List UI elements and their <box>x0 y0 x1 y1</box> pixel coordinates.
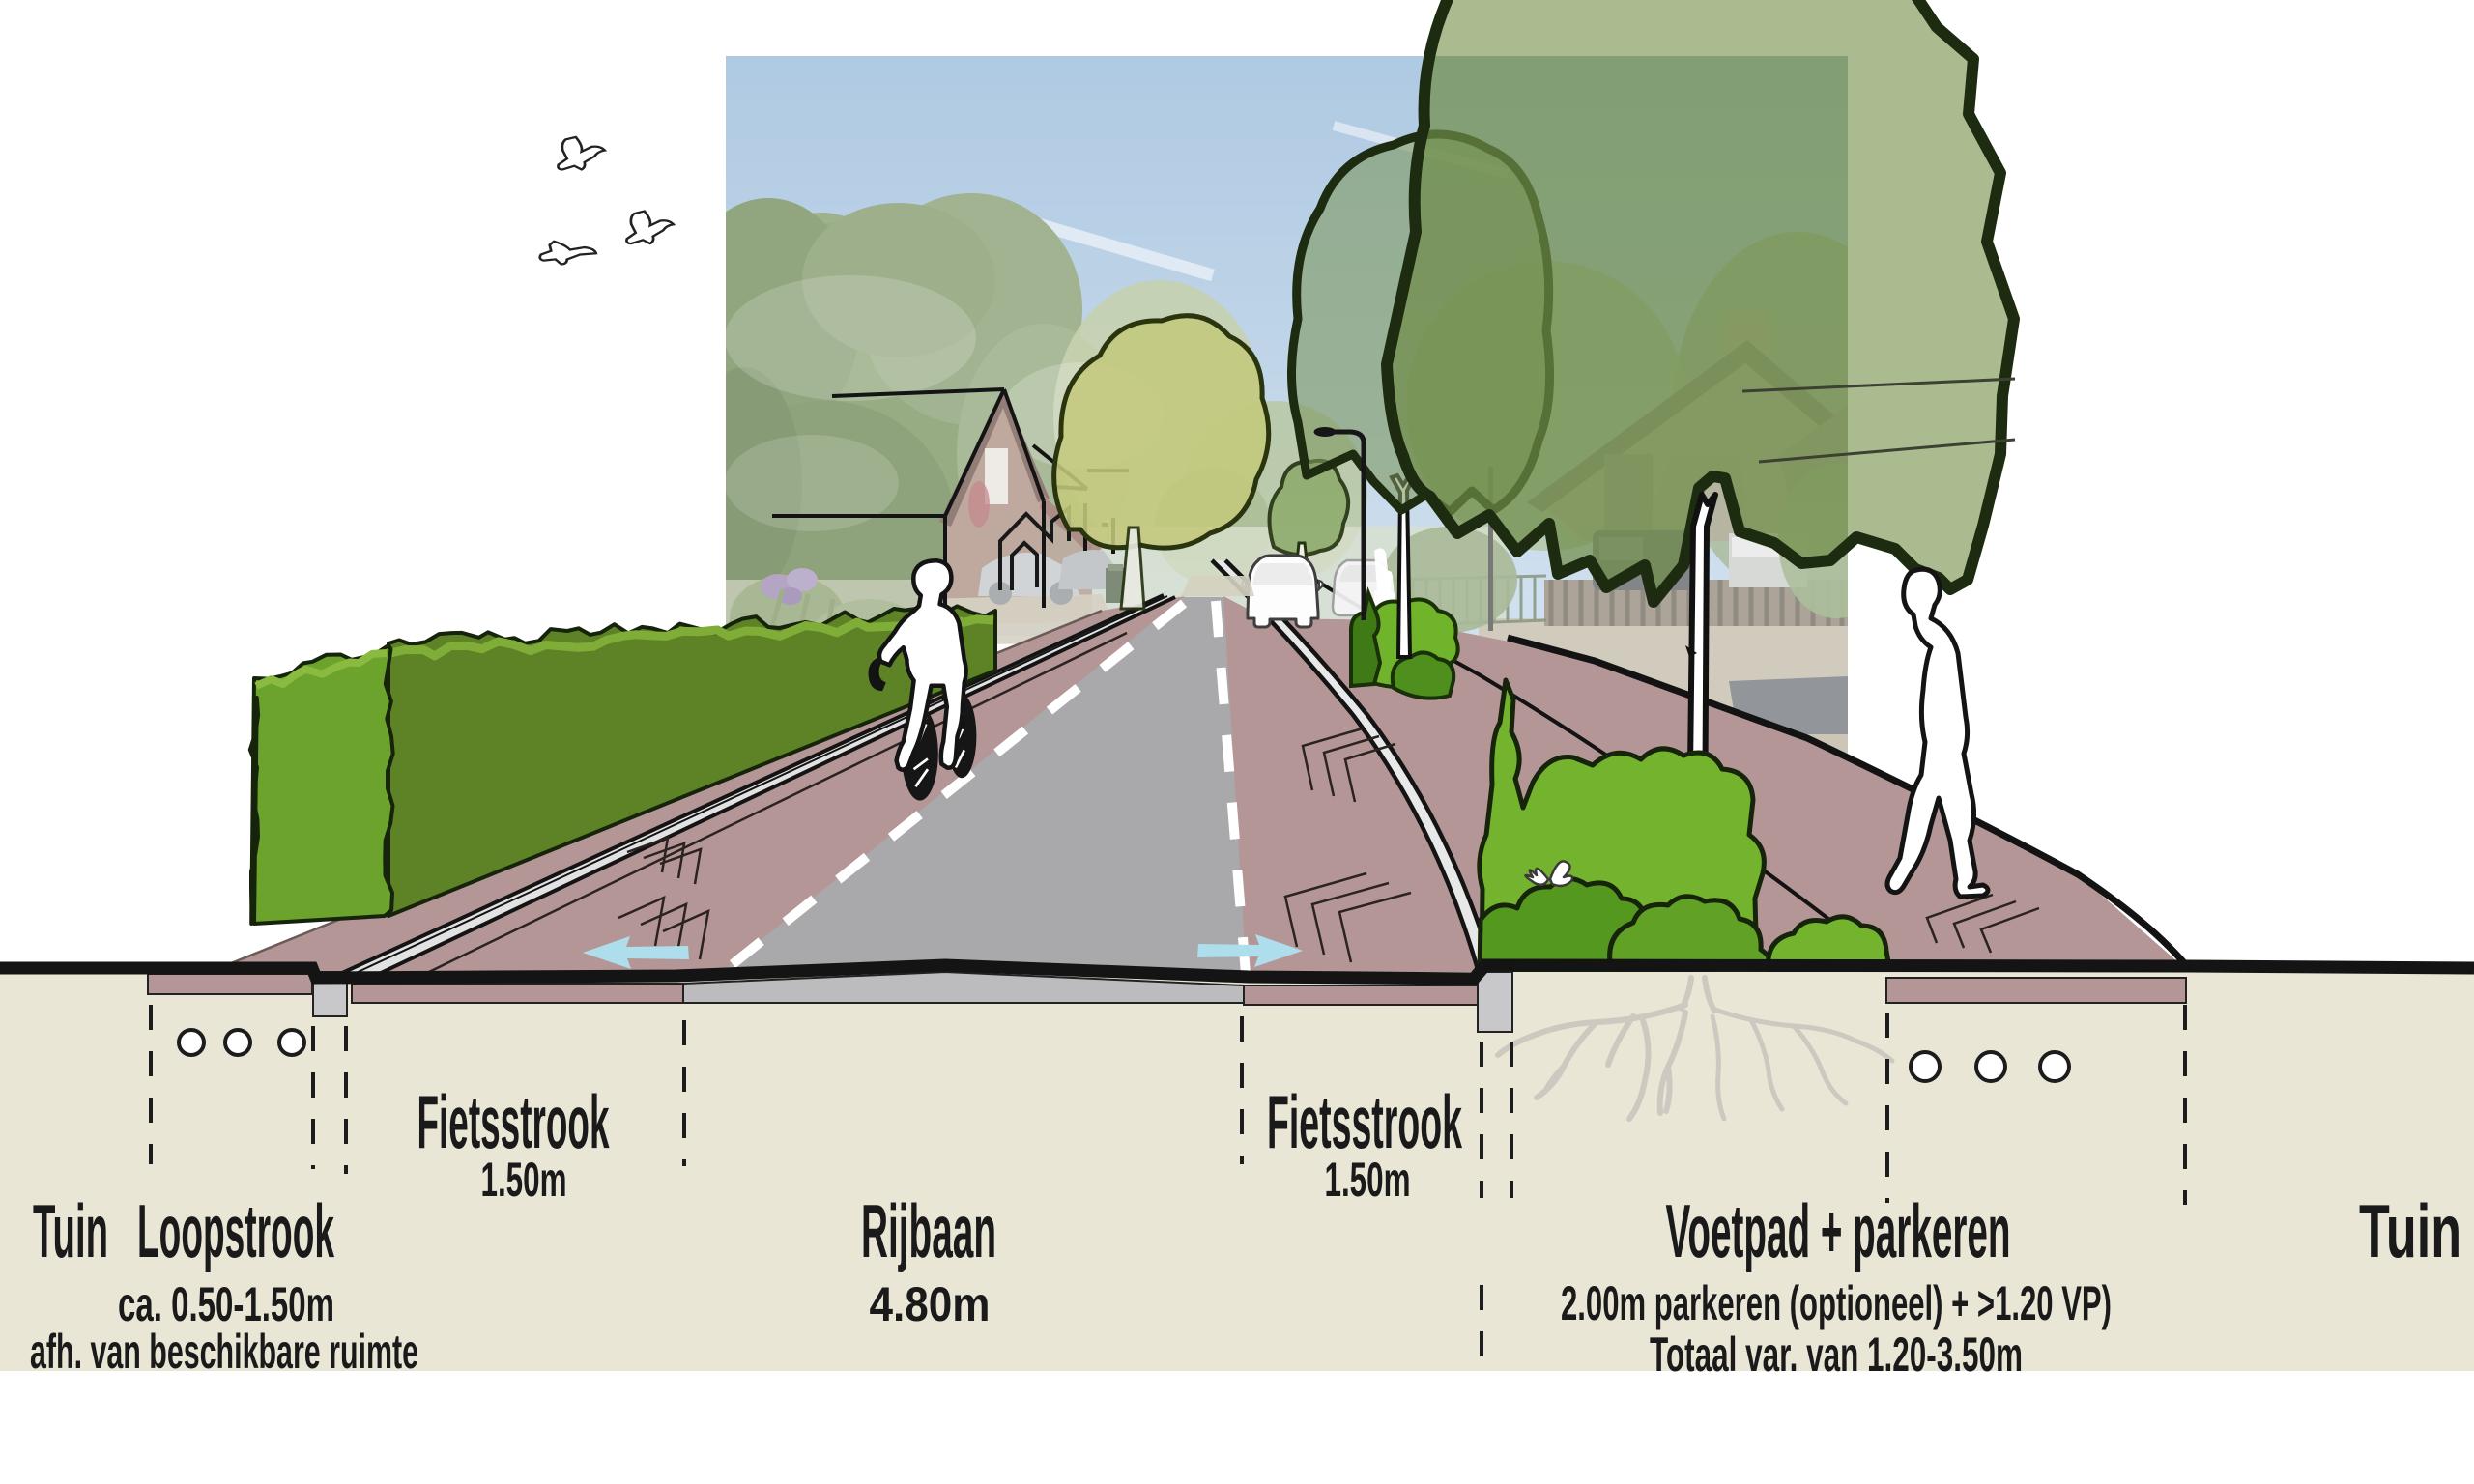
svg-text:Fietsstrook: Fietsstrook <box>1267 1079 1462 1164</box>
svg-text:Fietsstrook: Fietsstrook <box>417 1079 610 1164</box>
svg-text:Rijbaan: Rijbaan <box>861 1188 996 1273</box>
svg-text:ca. 0.50-1.50m: ca. 0.50-1.50m <box>118 1277 334 1331</box>
svg-text:Totaal var. van 1.20-3.50m: Totaal var. van 1.20-3.50m <box>1650 1327 2023 1382</box>
svg-text:4.80m: 4.80m <box>870 1277 991 1331</box>
svg-text:1.50m: 1.50m <box>481 1153 567 1207</box>
svg-text:Voetpad + parkeren: Voetpad + parkeren <box>1666 1188 2011 1273</box>
svg-text:2.00m parkeren (optioneel) + >: 2.00m parkeren (optioneel) + >1.20 VP) <box>1561 1276 2112 1330</box>
svg-text:Tuin: Tuin <box>2359 1188 2461 1273</box>
svg-text:1.50m: 1.50m <box>1325 1153 1411 1207</box>
svg-text:Tuin: Tuin <box>33 1188 108 1273</box>
svg-text:Loopstrook: Loopstrook <box>137 1188 334 1273</box>
svg-text:afh. van beschikbare ruimte: afh. van beschikbare ruimte <box>30 1325 418 1379</box>
